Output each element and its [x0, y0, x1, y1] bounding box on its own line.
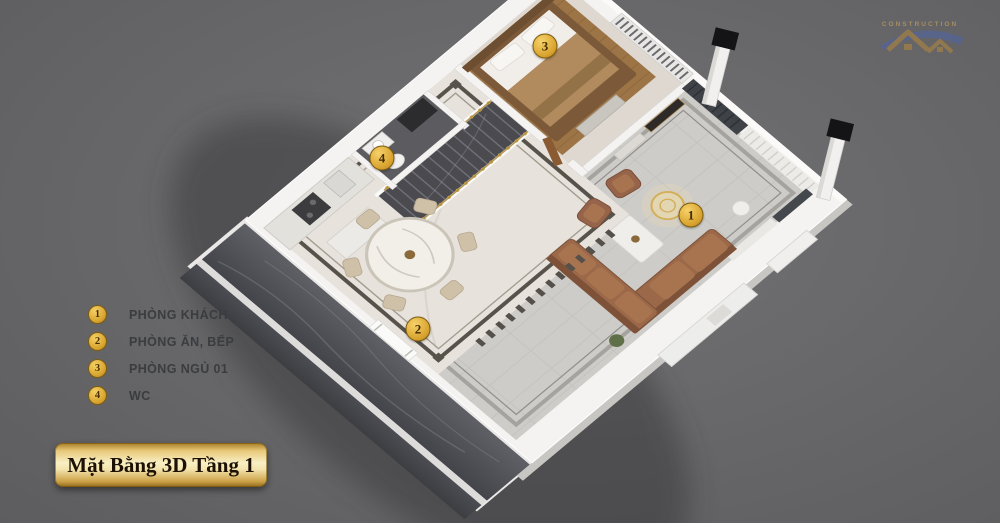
plan-marker-1: 1 — [679, 203, 704, 228]
legend-number-badge: 4 — [88, 386, 107, 405]
legend-item-living-room: 1 PHÒNG KHÁCH — [88, 301, 234, 328]
legend-item-dining-kitchen: 2 PHÒNG ĂN, BẾP — [88, 328, 234, 355]
plan-marker-2: 2 — [406, 317, 431, 342]
construction-company-logo: CONSTRUCTION — [868, 20, 972, 28]
legend-number-badge: 1 — [88, 305, 107, 324]
room-legend: 1 PHÒNG KHÁCH 2 PHÒNG ĂN, BẾP 3 PHÒNG NG… — [88, 301, 234, 409]
logo-roofs-icon — [868, 20, 972, 58]
page-title: Mặt Bằng 3D Tầng 1 — [67, 453, 254, 478]
floor-plan-scene: 1 2 3 4 1 PHÒNG KHÁCH 2 PHÒNG ĂN, BẾP 3 … — [0, 0, 1000, 523]
legend-label: PHÒNG NGỦ 01 — [129, 362, 228, 376]
legend-label: PHÒNG KHÁCH — [129, 308, 228, 322]
floor-plan-title-plaque: Mặt Bằng 3D Tầng 1 — [55, 443, 267, 487]
legend-label: PHÒNG ĂN, BẾP — [129, 335, 234, 349]
legend-number-badge: 3 — [88, 359, 107, 378]
plan-marker-4: 4 — [370, 146, 395, 171]
plan-rotated-group — [177, 0, 859, 523]
legend-number-badge: 2 — [88, 332, 107, 351]
legend-item-wc: 4 WC — [88, 382, 234, 409]
legend-item-bedroom: 3 PHÒNG NGỦ 01 — [88, 355, 234, 382]
plan-marker-3: 3 — [533, 34, 558, 59]
legend-label: WC — [129, 389, 151, 403]
